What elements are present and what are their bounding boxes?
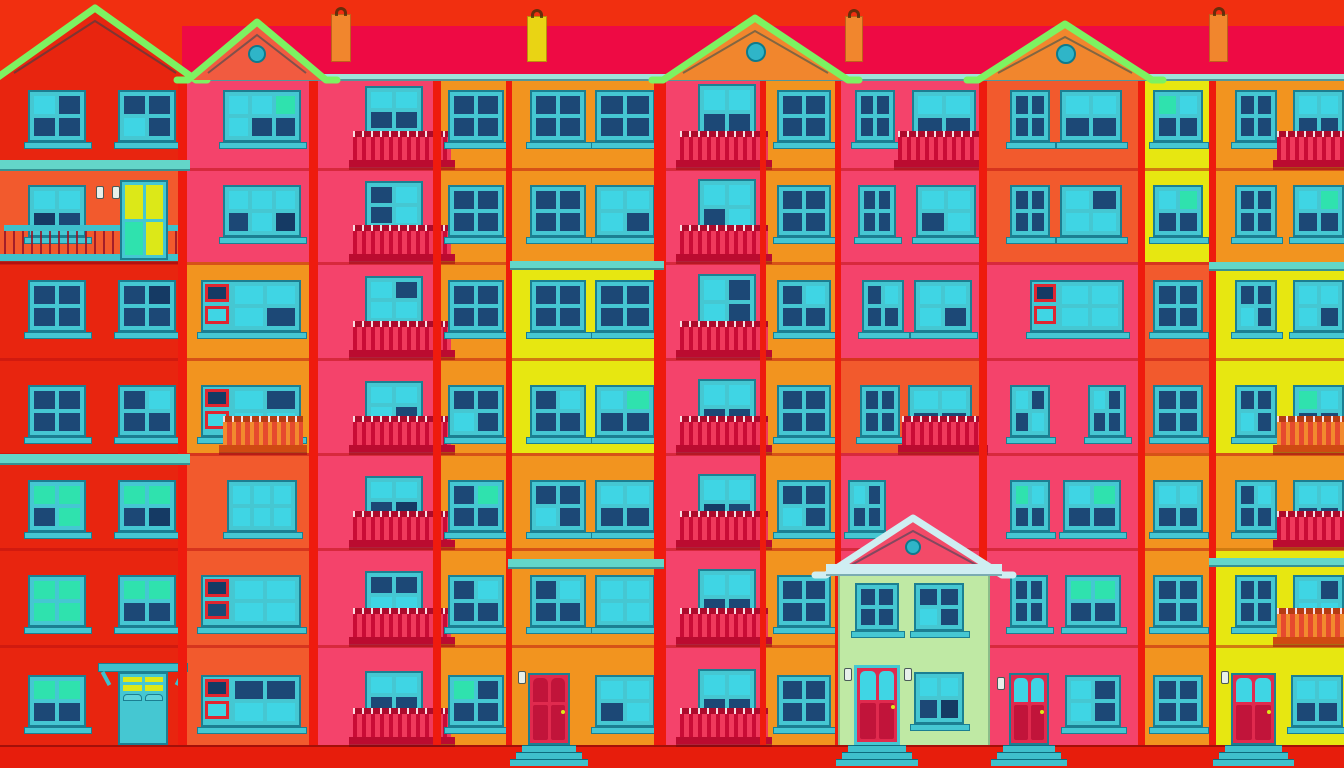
window <box>595 575 655 627</box>
window-pane <box>560 308 580 326</box>
window-pane <box>941 700 958 718</box>
door-steps <box>1219 752 1288 759</box>
window-pane <box>914 391 938 409</box>
window-pane <box>235 581 263 599</box>
window-pane <box>478 703 498 721</box>
window <box>914 672 964 724</box>
balcony <box>1277 608 1344 644</box>
window-pane <box>704 480 725 500</box>
door-panel <box>860 703 876 739</box>
window-pane <box>885 286 898 304</box>
window-sill <box>24 627 92 634</box>
window-pane <box>948 213 970 231</box>
window-pane <box>806 703 825 721</box>
window-pane <box>806 486 825 504</box>
window-pane <box>124 508 145 526</box>
door-panel <box>860 671 876 700</box>
window-pane <box>1095 603 1115 621</box>
window-pane <box>920 589 937 605</box>
window-sill <box>1231 437 1283 444</box>
window-pane <box>59 96 80 114</box>
window-pane <box>866 391 878 409</box>
window-pane <box>879 213 890 231</box>
window-pane <box>59 191 80 209</box>
window-sill <box>910 631 970 638</box>
window-pane <box>454 413 474 431</box>
window-pane <box>627 703 649 721</box>
window-pane <box>1031 603 1042 621</box>
window-sill <box>1006 237 1056 244</box>
window <box>1153 90 1203 142</box>
window-pane <box>806 118 825 136</box>
window-pane <box>783 118 802 136</box>
window-pane <box>396 677 417 693</box>
window-pane <box>1321 96 1339 114</box>
window-pane <box>806 286 825 304</box>
window-pane <box>560 413 580 431</box>
window <box>448 385 504 437</box>
window <box>118 480 176 532</box>
window-pane <box>1031 581 1042 599</box>
window-pane <box>478 391 498 409</box>
window-pane <box>729 280 750 300</box>
window-pane <box>1321 191 1339 209</box>
window-pane <box>34 308 55 326</box>
window-pane <box>396 92 417 108</box>
window-pane <box>478 286 498 304</box>
balcony-bars <box>680 517 768 540</box>
window-pane <box>601 681 623 699</box>
window-pane <box>1159 413 1176 431</box>
window-pane <box>205 284 229 302</box>
window-pane <box>877 96 889 114</box>
window-pane <box>478 118 498 136</box>
window-pane <box>59 681 80 699</box>
window-pane <box>1180 191 1197 209</box>
window-pane <box>854 486 865 504</box>
balcony-slab <box>676 445 772 452</box>
window <box>530 385 586 437</box>
window-pane <box>274 486 291 504</box>
window-pane <box>1299 96 1317 114</box>
window-pane <box>34 391 55 409</box>
window <box>227 480 297 532</box>
window <box>28 385 86 437</box>
window-pane <box>1258 581 1271 599</box>
window-pane <box>229 96 248 114</box>
window <box>1060 90 1122 142</box>
door-steps <box>510 759 588 766</box>
window-pane <box>1032 413 1044 431</box>
door-leaf <box>123 677 142 701</box>
window-pane <box>560 213 580 231</box>
window <box>1235 480 1277 532</box>
window-pane <box>601 191 623 209</box>
wall-lamp-icon <box>112 186 120 199</box>
window-pane <box>536 96 556 114</box>
window-sill <box>526 532 592 539</box>
window-pane <box>1319 703 1337 721</box>
window-pane <box>882 391 894 409</box>
window <box>201 675 301 727</box>
gable-4 <box>964 0 1166 88</box>
window-sill <box>1231 532 1283 539</box>
window-pane <box>1241 486 1254 504</box>
window-sill <box>526 332 592 339</box>
window-sill <box>114 142 182 149</box>
balcony-slab <box>676 637 772 644</box>
window-pane <box>396 302 417 318</box>
window-pane <box>267 391 295 409</box>
window <box>1293 185 1344 237</box>
window-sill <box>114 627 182 634</box>
window-pane <box>1016 96 1028 114</box>
window-sill <box>910 332 978 339</box>
window-pane <box>1071 703 1091 721</box>
window <box>1235 280 1277 332</box>
balcony-slab <box>1273 637 1344 644</box>
balcony-bars <box>1277 137 1344 160</box>
window-pane <box>1034 284 1056 302</box>
door-steps <box>1003 745 1055 752</box>
window-pane <box>1258 308 1271 326</box>
window-pane <box>276 213 295 231</box>
balcony-bars <box>1277 614 1344 637</box>
balcony-slab <box>894 160 986 167</box>
window-pane <box>783 191 802 209</box>
window-pane <box>1094 413 1105 431</box>
window-pane <box>864 191 875 209</box>
window-pane <box>560 96 580 114</box>
window-pane <box>371 282 392 298</box>
window-pane <box>1241 96 1254 114</box>
window <box>1065 675 1121 727</box>
window-pane <box>59 703 80 721</box>
window-pane <box>560 603 580 621</box>
door-panel <box>533 678 548 702</box>
window-pane <box>922 213 944 231</box>
window <box>1153 280 1203 332</box>
window-sill <box>591 727 661 734</box>
window-pane <box>34 118 55 136</box>
balcony-bars <box>680 137 768 160</box>
window-pane <box>868 286 881 304</box>
window-pane <box>254 486 271 504</box>
window <box>1088 385 1126 437</box>
window-pane <box>34 286 55 304</box>
window-pane <box>877 118 889 136</box>
window <box>777 675 831 727</box>
window-pane <box>1095 681 1115 699</box>
window-pane <box>1093 118 1116 136</box>
window-sill <box>1059 532 1127 539</box>
window-pane <box>783 486 802 504</box>
window-pane <box>1159 96 1176 114</box>
window-pane <box>1016 213 1028 231</box>
window <box>860 385 900 437</box>
window-pane <box>371 482 392 498</box>
window-pane <box>945 286 966 304</box>
window <box>223 90 301 142</box>
balcony-bars <box>1277 422 1344 445</box>
balcony <box>680 416 768 452</box>
balcony-slab <box>676 350 772 357</box>
window-pane <box>1032 508 1044 526</box>
balcony-bars <box>680 231 768 254</box>
wall-lamp-icon <box>844 668 852 681</box>
balcony <box>680 511 768 547</box>
window-sill <box>910 724 970 731</box>
window-pane <box>124 413 145 431</box>
window-pane <box>149 286 170 304</box>
window-pane <box>1180 391 1197 409</box>
window-pane <box>1016 603 1027 621</box>
window-pane <box>1180 308 1197 326</box>
window-pane <box>1180 286 1197 304</box>
balcony-bars <box>902 422 984 445</box>
column-divider <box>309 78 318 745</box>
window-sill <box>1149 627 1209 634</box>
window-pane <box>1321 486 1339 504</box>
window-sill <box>24 727 92 734</box>
window-pane <box>1159 603 1176 621</box>
window-pane <box>1258 508 1271 526</box>
window-pane <box>1062 286 1088 304</box>
window-sill <box>223 532 303 539</box>
wall-lamp-icon <box>1221 671 1229 684</box>
window-pane <box>1094 508 1115 526</box>
window-pane <box>1321 308 1339 326</box>
window <box>530 480 586 532</box>
window-pane <box>536 391 556 409</box>
window-pane <box>1159 508 1176 526</box>
window-sill <box>1231 142 1283 149</box>
window <box>448 575 504 627</box>
window-pane <box>1016 118 1028 136</box>
window-pane <box>783 581 802 599</box>
window <box>855 583 899 631</box>
window-pane <box>252 118 271 136</box>
window-pane <box>704 385 725 405</box>
window <box>1235 575 1277 627</box>
door-pane <box>146 222 164 256</box>
window-sill <box>591 332 661 339</box>
window <box>448 90 504 142</box>
window-pane <box>371 207 392 223</box>
window-pane <box>1095 703 1115 721</box>
window-pane <box>536 486 556 504</box>
window-sill <box>1231 332 1283 339</box>
cornice-band <box>0 454 190 465</box>
window-sill <box>854 237 902 244</box>
window-pane <box>729 185 750 205</box>
window-pane <box>1180 486 1197 504</box>
window-pane <box>371 302 392 318</box>
window <box>530 575 586 627</box>
window-pane <box>560 118 580 136</box>
red-door <box>1009 673 1049 745</box>
window-pane <box>478 581 498 599</box>
window-sill <box>858 332 910 339</box>
window <box>28 480 86 532</box>
window-pane <box>1016 508 1028 526</box>
door-steps <box>991 759 1067 766</box>
window-pane <box>1297 703 1315 721</box>
window-sill <box>912 237 982 244</box>
window-sill <box>526 237 592 244</box>
window-pane <box>864 213 875 231</box>
window <box>448 185 504 237</box>
column-divider <box>654 78 666 745</box>
window-pane <box>1241 118 1254 136</box>
door-pane <box>125 185 143 219</box>
window-pane <box>946 96 970 114</box>
window-sill <box>773 437 837 444</box>
window-sill <box>773 237 837 244</box>
window-pane <box>454 486 474 504</box>
window-pane <box>1066 96 1089 114</box>
window-pane <box>806 413 825 431</box>
window-sill <box>1006 627 1054 634</box>
column-divider <box>1209 78 1216 745</box>
window-pane <box>149 486 170 504</box>
window-pane <box>536 581 556 599</box>
window-pane <box>729 480 750 500</box>
window-sill <box>1149 237 1209 244</box>
window-pane <box>276 118 295 136</box>
window-pane <box>941 609 958 625</box>
door-pane <box>145 685 164 690</box>
window-sill <box>444 437 510 444</box>
window-pane <box>879 191 890 209</box>
window-pane <box>1062 308 1088 326</box>
window <box>28 575 86 627</box>
window-pane <box>59 118 80 136</box>
window-pane <box>729 385 750 405</box>
window-pane <box>806 308 825 326</box>
window-pane <box>267 286 295 304</box>
window-sill <box>526 437 592 444</box>
red-door <box>1231 673 1276 745</box>
column-divider <box>506 78 512 745</box>
window-pane <box>1092 286 1118 304</box>
window-pane <box>627 508 649 526</box>
window-sill <box>24 142 92 149</box>
balcony <box>223 416 303 452</box>
window-pane <box>1241 603 1254 621</box>
cornice-band <box>826 564 1002 576</box>
window-pane <box>536 286 556 304</box>
door-canopy <box>98 663 188 672</box>
window-pane <box>1258 603 1271 621</box>
window <box>1235 185 1277 237</box>
window <box>118 575 176 627</box>
window-pane <box>454 213 474 231</box>
balcony-bars <box>223 422 303 445</box>
window <box>777 280 831 332</box>
window-pane <box>1016 486 1028 504</box>
window <box>595 280 655 332</box>
window-sill <box>773 142 837 149</box>
window-pane <box>478 508 498 526</box>
window <box>777 185 831 237</box>
window-pane <box>59 391 80 409</box>
window-pane <box>205 579 229 597</box>
door-steps <box>848 745 906 752</box>
window-pane <box>806 96 825 114</box>
window-pane <box>560 581 580 599</box>
window <box>777 385 831 437</box>
window-pane <box>1092 308 1118 326</box>
window-pane <box>454 703 474 721</box>
window-pane <box>783 391 802 409</box>
window-pane <box>1066 118 1089 136</box>
window-pane <box>205 701 229 719</box>
window-pane <box>1032 486 1044 504</box>
window-pane <box>124 96 145 114</box>
window <box>1063 480 1121 532</box>
window-pane <box>1258 391 1271 409</box>
window-pane <box>229 118 248 136</box>
door-panel <box>879 671 895 700</box>
door-panel <box>1236 678 1252 702</box>
door-steps <box>997 752 1061 759</box>
window <box>201 280 301 332</box>
window-pane <box>267 703 295 721</box>
window <box>595 185 655 237</box>
window-pane <box>1241 508 1254 526</box>
window-pane <box>627 191 649 209</box>
window <box>1030 280 1124 332</box>
window-pane <box>601 308 623 326</box>
door-panel <box>1236 705 1252 740</box>
window-sill <box>444 532 510 539</box>
window-pane <box>454 286 474 304</box>
window <box>1235 385 1277 437</box>
door-leaf <box>145 677 164 701</box>
window-pane <box>601 96 623 114</box>
window <box>777 90 831 142</box>
window-pane <box>396 282 417 298</box>
door-steps <box>522 745 576 752</box>
window <box>1291 675 1343 727</box>
window-pane <box>783 681 802 699</box>
window-pane <box>806 391 825 409</box>
window-pane <box>729 90 750 110</box>
window-sill <box>856 437 906 444</box>
window-sill <box>114 332 182 339</box>
window-pane <box>267 581 295 599</box>
window-pane <box>454 391 474 409</box>
window-pane <box>1159 703 1176 721</box>
window-sill <box>1231 627 1283 634</box>
window-pane <box>806 581 825 599</box>
window-sill <box>197 727 307 734</box>
door-pane <box>145 677 164 682</box>
door-panel <box>551 678 566 702</box>
window-sill <box>1056 237 1128 244</box>
balcony <box>680 608 768 644</box>
window-pane <box>1319 681 1337 699</box>
chimney <box>527 16 547 62</box>
window <box>530 90 586 142</box>
window-pane <box>1159 118 1176 136</box>
window-pane <box>34 703 55 721</box>
window-pane <box>1180 581 1197 599</box>
window-sill <box>1149 437 1209 444</box>
window-sill <box>851 142 901 149</box>
window-sill <box>444 332 510 339</box>
